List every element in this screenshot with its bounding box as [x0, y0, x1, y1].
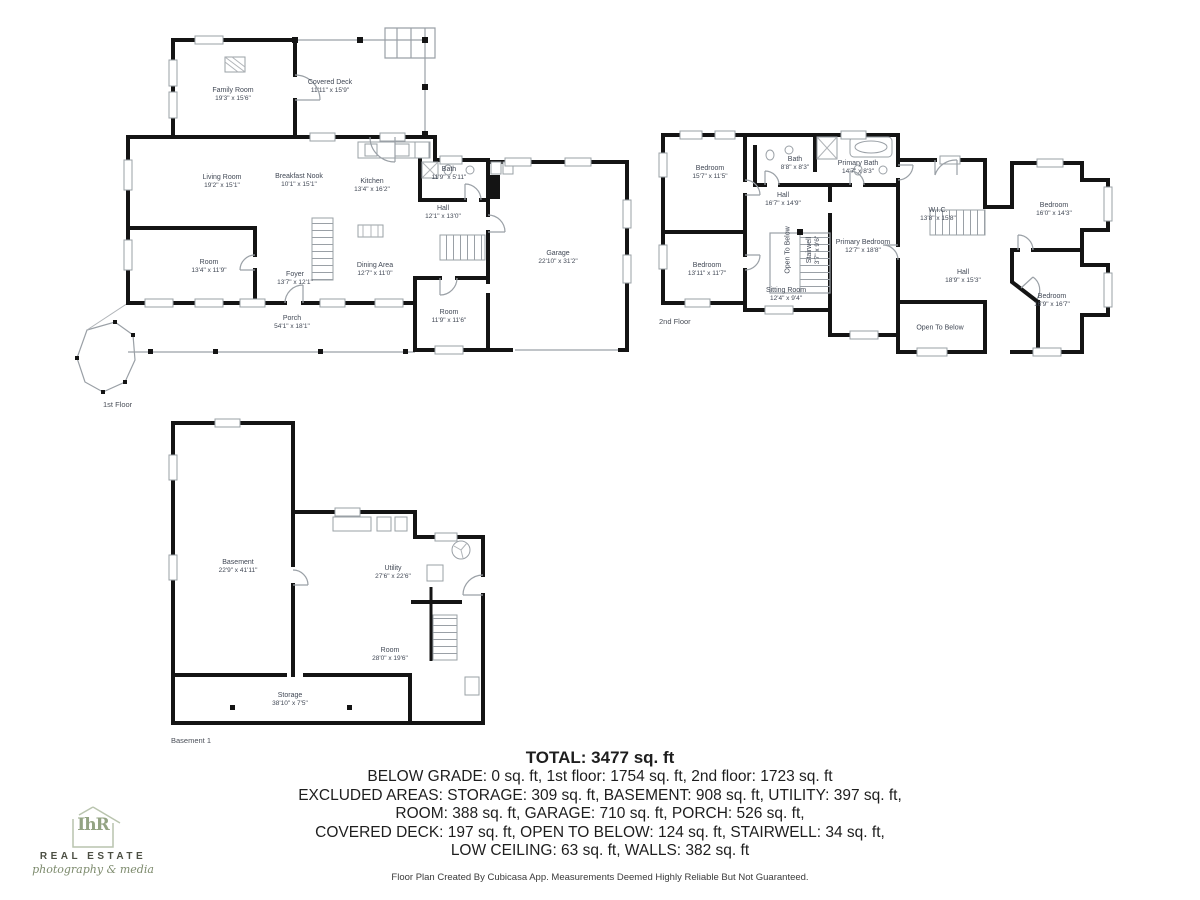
doors-basement [293, 570, 483, 595]
windows-2f [659, 131, 1112, 356]
windows [124, 36, 631, 354]
floor-caption-2nd: 2nd Floor [659, 317, 691, 326]
first-floor-plan [75, 20, 645, 420]
fireplace [225, 57, 245, 72]
summary-line: COVERED DECK: 197 sq. ft, OPEN TO BELOW:… [0, 824, 1200, 843]
windows-basement [169, 419, 457, 580]
bath-fixtures-2f [766, 137, 892, 175]
logo-realestate-text: REAL ESTATE [28, 851, 158, 862]
porch-structure [75, 303, 415, 394]
stairwell-open-below [770, 210, 985, 293]
floor-caption-1st: 1st Floor [103, 400, 132, 409]
doors-2f [745, 160, 1040, 299]
staircase [312, 218, 485, 280]
second-floor-plan [655, 125, 1125, 360]
logo-tagline: photography & media [28, 863, 158, 876]
doors [240, 75, 505, 303]
summary-line: EXCLUDED AREAS: STORAGE: 309 sq. ft, BAS… [0, 787, 1200, 806]
basement-plan [165, 415, 495, 755]
basement-stairs [433, 615, 457, 660]
storage-posts [230, 705, 352, 710]
area-summary: TOTAL: 3477 sq. ft BELOW GRADE: 0 sq. ft… [0, 748, 1200, 861]
floor-caption-basement: Basement 1 [171, 736, 211, 745]
fan-icon [452, 541, 470, 559]
summary-line: ROOM: 388 sq. ft, GARAGE: 710 sq. ft, PO… [0, 805, 1200, 824]
floor-plan-page: { "document": {"type": "floor-plan-sheet… [0, 0, 1200, 900]
company-logo: IhR REAL ESTATE photography & media [28, 806, 158, 876]
total-area: TOTAL: 3477 sq. ft [0, 748, 1200, 768]
summary-line: BELOW GRADE: 0 sq. ft, 1st floor: 1754 s… [0, 768, 1200, 787]
summary-line: LOW CEILING: 63 sq. ft, WALLS: 382 sq. f… [0, 842, 1200, 861]
disclaimer-text: Floor Plan Created By Cubicasa App. Meas… [0, 872, 1200, 883]
logo-monogram: IhR [65, 815, 121, 835]
